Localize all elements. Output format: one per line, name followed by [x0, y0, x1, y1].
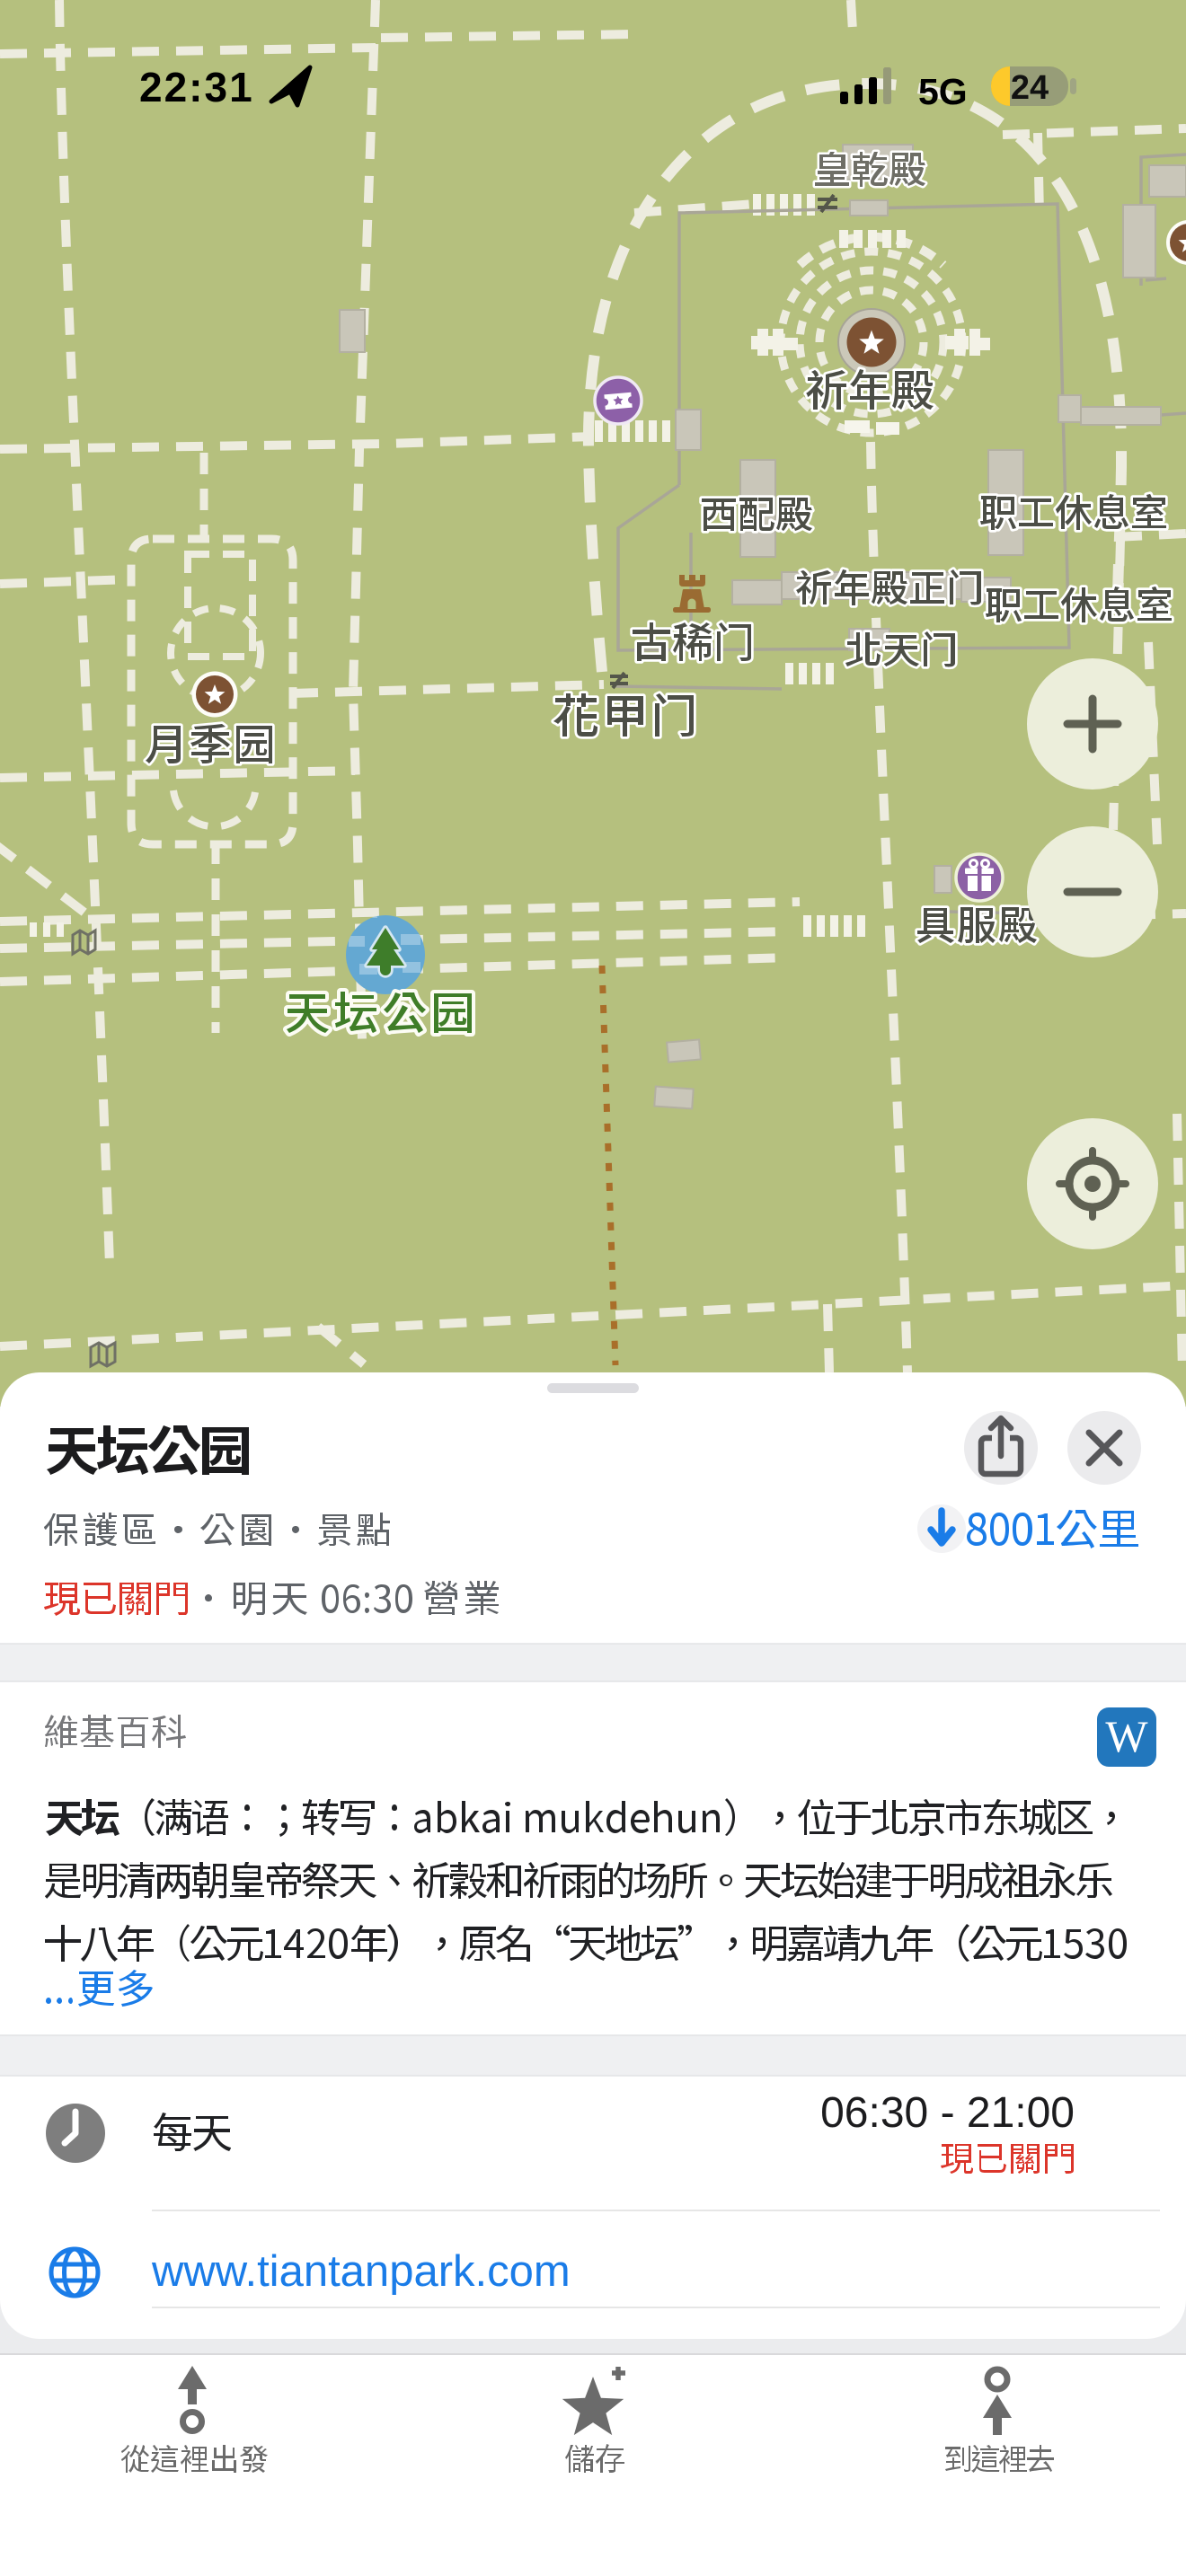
svg-text:5G: 5G	[918, 71, 968, 112]
svg-text:www.tiantanpark.com: www.tiantanpark.com	[151, 2247, 571, 2296]
svg-text:22:31: 22:31	[139, 64, 254, 110]
svg-text:06:30 - 21:00: 06:30 - 21:00	[820, 2089, 1075, 2137]
svg-text:W: W	[1105, 1711, 1148, 1761]
svg-text:24: 24	[1011, 69, 1049, 107]
